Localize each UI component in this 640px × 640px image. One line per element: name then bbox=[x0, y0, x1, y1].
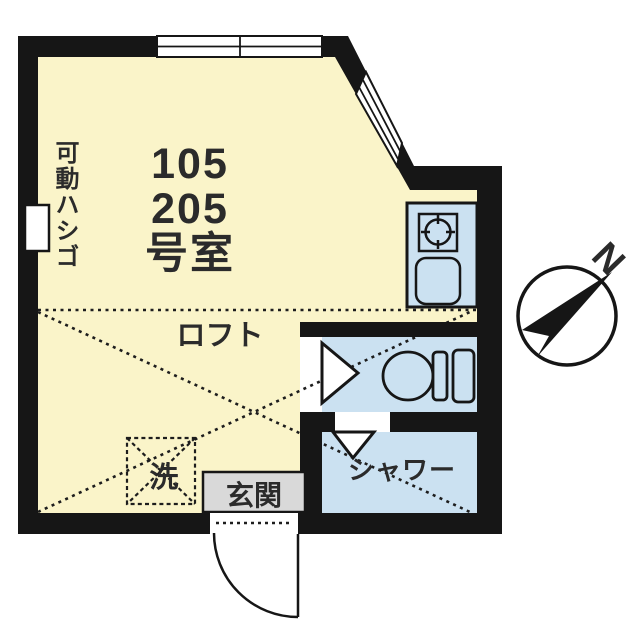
door-swing-arc-icon bbox=[214, 533, 298, 617]
shower-door-opening bbox=[335, 412, 390, 432]
movable-ladder-label: 可動ハシゴ bbox=[47, 140, 82, 285]
room-number-line1: 105 bbox=[130, 142, 250, 187]
toilet-door-opening bbox=[300, 337, 322, 412]
floorplan-image: 105 205 号室 可動ハシゴ ロフト 洗 玄関 シャワー N bbox=[0, 0, 640, 640]
entrance-door bbox=[210, 513, 298, 617]
floorplan-drawing bbox=[0, 0, 640, 640]
washer-label: 洗 bbox=[133, 454, 195, 496]
room-number-line2: 205 bbox=[130, 187, 250, 232]
window-top bbox=[157, 36, 322, 57]
room-number-label: 105 205 号室 bbox=[130, 142, 250, 277]
ladder-opening-icon bbox=[25, 205, 49, 251]
room-number-line3: 号室 bbox=[130, 232, 250, 277]
entrance-label: 玄関 bbox=[203, 474, 305, 514]
kitchen-counter bbox=[407, 203, 477, 307]
shower-label: シャワー bbox=[327, 450, 477, 487]
loft-label: ロフト bbox=[170, 312, 270, 354]
